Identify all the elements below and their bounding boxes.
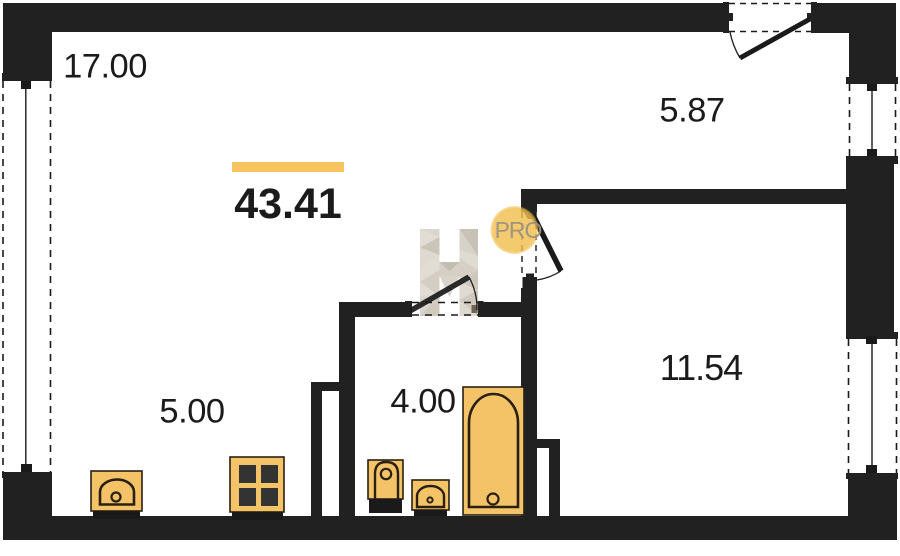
svg-text:5.87: 5.87: [659, 92, 724, 130]
svg-text:PRO: PRO: [495, 217, 542, 243]
svg-text:43.41: 43.41: [234, 180, 342, 228]
svg-text:11.54: 11.54: [660, 347, 742, 388]
svg-text:4.00: 4.00: [390, 383, 455, 421]
svg-text:5.00: 5.00: [159, 393, 224, 431]
svg-text:17.00: 17.00: [63, 48, 147, 86]
